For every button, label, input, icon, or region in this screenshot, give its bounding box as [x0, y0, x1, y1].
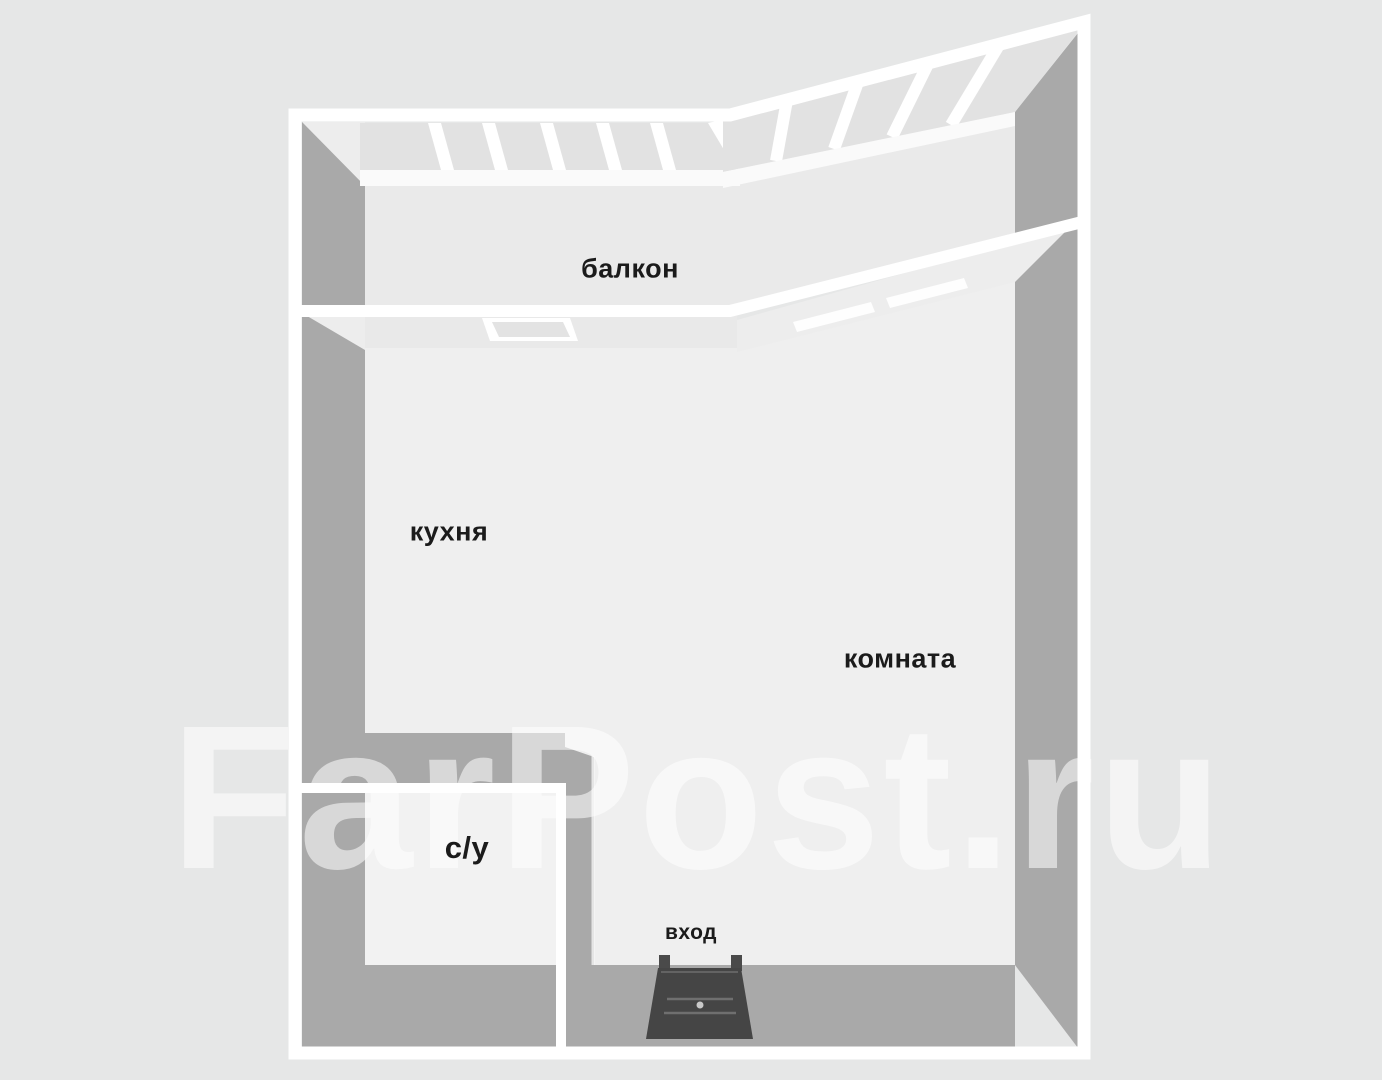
bathroom-floor	[365, 791, 557, 965]
balcony-label: балкон	[581, 254, 679, 285]
left-wall-face	[302, 122, 365, 1050]
kitchen-balcony-wall	[365, 316, 737, 348]
door-handle	[697, 1002, 704, 1009]
kitchen-label: кухня	[410, 517, 488, 548]
room-label: комната	[844, 644, 956, 675]
right-wall-face	[1015, 33, 1078, 1048]
floorplan-canvas	[0, 0, 1382, 1080]
floorplan-page: FarPost.ru балкон кухня комната с/у вход	[0, 0, 1382, 1080]
entrance-label: вход	[665, 921, 717, 945]
bathroom-east-wall-face	[565, 747, 594, 965]
bathroom-north-wall-face	[302, 733, 565, 784]
window-sill	[360, 170, 740, 186]
kitchen-window-pane	[492, 322, 570, 337]
bathroom-label: с/у	[445, 830, 490, 866]
balcony-windows-left	[360, 114, 764, 186]
